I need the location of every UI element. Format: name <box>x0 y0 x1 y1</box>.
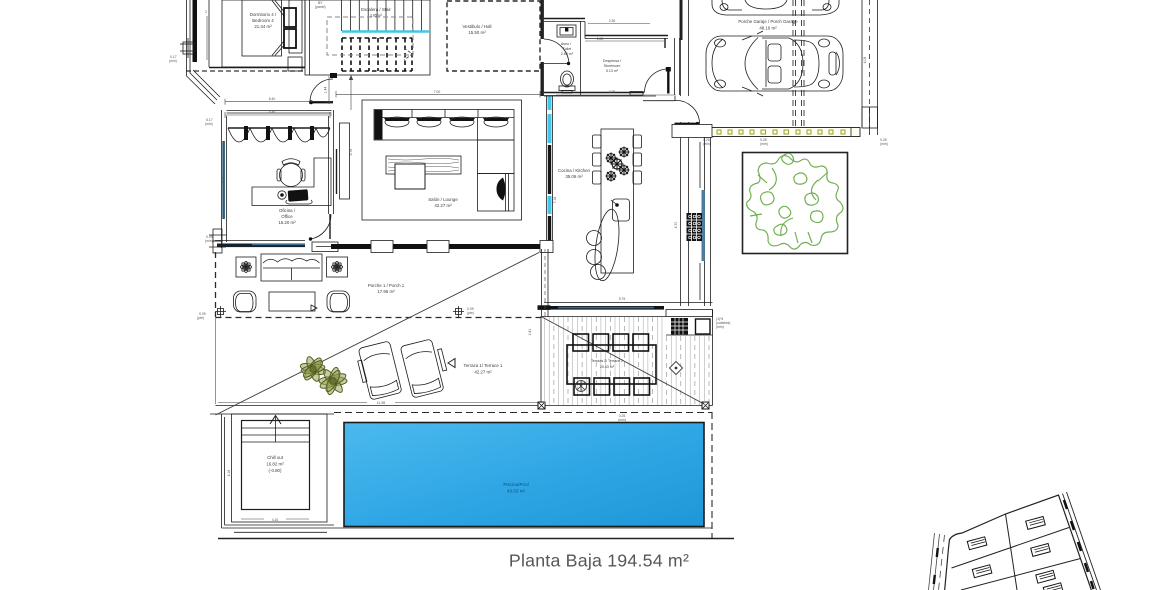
svg-text:7.18: 7.18 <box>553 197 557 204</box>
svg-text:(pte): (pte) <box>467 311 474 315</box>
svg-text:Porche Garaje / Porch Garage: Porche Garaje / Porch Garage <box>738 19 798 24</box>
svg-text:3.85 m²: 3.85 m² <box>370 14 383 18</box>
svg-text:(min): (min) <box>716 325 724 329</box>
svg-text:3.40: 3.40 <box>269 111 276 115</box>
svg-text:2: 2 <box>205 10 207 14</box>
svg-text:Escalera / Stair: Escalera / Stair <box>361 7 391 12</box>
svg-text:4.75: 4.75 <box>609 90 616 94</box>
svg-text:4.70: 4.70 <box>674 222 678 229</box>
svg-text:(pte): (pte) <box>197 316 204 320</box>
svg-text:4.36: 4.36 <box>221 177 225 184</box>
svg-text:20.43 m²: 20.43 m² <box>600 365 615 369</box>
svg-text:Salón / Lounge: Salón / Lounge <box>428 197 458 202</box>
svg-text:15.50 m²: 15.50 m² <box>468 30 486 35</box>
svg-text:Chill out: Chill out <box>267 455 284 460</box>
svg-text:Dormitorio 4 /: Dormitorio 4 / <box>250 12 277 17</box>
svg-text:Piscina/Pool: Piscina/Pool <box>503 482 528 487</box>
svg-text:(-0.80): (-0.80) <box>269 468 282 473</box>
svg-text:2.80: 2.80 <box>597 37 604 41</box>
svg-text:2.30: 2.30 <box>609 19 616 23</box>
svg-text:(min): (min) <box>205 122 213 126</box>
svg-text:Oficina /: Oficina / <box>279 208 296 213</box>
svg-text:21.34 m²: 21.34 m² <box>254 24 272 29</box>
svg-text:Despensa /: Despensa / <box>603 59 621 63</box>
svg-text:5.13 m²: 5.13 m² <box>606 69 619 73</box>
svg-text:7.00: 7.00 <box>434 90 441 94</box>
svg-text:42.27 m²: 42.27 m² <box>474 370 492 375</box>
svg-text:2.41: 2.41 <box>528 329 532 336</box>
svg-text:48.16 m²: 48.16 m² <box>759 26 777 31</box>
svg-text:Terraza 2/ Terrace 2: Terraza 2/ Terrace 2 <box>591 359 623 363</box>
svg-text:4.10: 4.10 <box>272 518 279 522</box>
svg-text:Toilet: Toilet <box>563 47 571 51</box>
svg-text:6.76: 6.76 <box>349 149 353 156</box>
svg-text:Terraza 1/ Terrace 1: Terraza 1/ Terrace 1 <box>464 363 504 368</box>
svg-text:Vestibulo / Hall: Vestibulo / Hall <box>462 24 491 29</box>
svg-text:Planta Baja 194.54 m²: Planta Baja 194.54 m² <box>509 551 689 571</box>
svg-text:35.06 m²: 35.06 m² <box>565 174 583 179</box>
svg-text:4.08: 4.08 <box>863 57 867 64</box>
svg-text:Office: Office <box>281 214 293 219</box>
svg-text:5.75: 5.75 <box>619 297 626 301</box>
svg-text:(min): (min) <box>760 142 768 146</box>
svg-text:43.53 m²: 43.53 m² <box>507 489 526 494</box>
svg-text:5.40: 5.40 <box>269 97 276 101</box>
svg-text:1.44: 1.44 <box>324 87 328 94</box>
svg-text:(min): (min) <box>205 239 213 243</box>
svg-text:(min): (min) <box>169 59 177 63</box>
svg-text:Storeroom: Storeroom <box>604 64 621 68</box>
svg-text:(min): (min) <box>880 142 888 146</box>
svg-text:4.16: 4.16 <box>227 470 231 477</box>
svg-text:Bedroom 4: Bedroom 4 <box>252 18 274 23</box>
svg-text:(panel): (panel) <box>315 5 326 9</box>
svg-text:11.98: 11.98 <box>377 401 385 405</box>
svg-text:2.60 m²: 2.60 m² <box>561 52 574 56</box>
svg-text:42.27 m²: 42.27 m² <box>434 203 452 208</box>
svg-text:Cocina / Kitchen: Cocina / Kitchen <box>558 168 591 173</box>
svg-text:16.82 m²: 16.82 m² <box>266 462 284 467</box>
svg-text:16.20 m²: 16.20 m² <box>278 220 296 225</box>
svg-text:17.95 m²: 17.95 m² <box>377 289 395 294</box>
svg-text:Aseo /: Aseo / <box>561 42 571 46</box>
svg-text:Porche 1 / Porch 1: Porche 1 / Porch 1 <box>368 283 405 288</box>
svg-text:(min): (min) <box>618 418 626 422</box>
